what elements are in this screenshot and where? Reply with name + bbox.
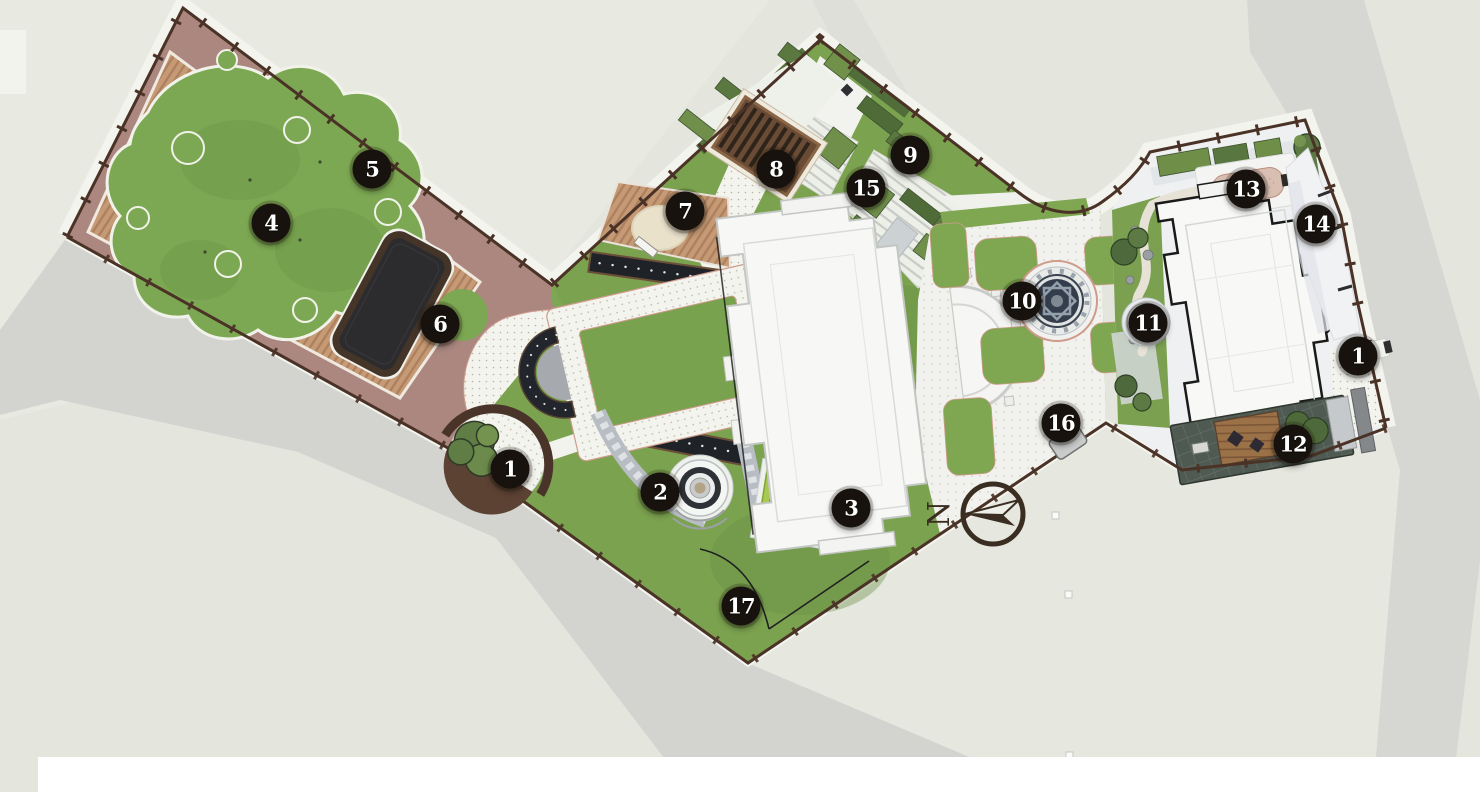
- site-plan-page: N 45612317789151011161314112: [0, 0, 1480, 792]
- dome-pavilion: [1122, 298, 1170, 346]
- bench: [1192, 441, 1209, 454]
- site-plan: N: [0, 0, 1480, 792]
- lawn-patch: [436, 289, 488, 341]
- north-label: N: [922, 501, 957, 527]
- tree-highlight: [1294, 135, 1306, 147]
- bottom-margin: [38, 757, 1480, 792]
- star-fountain: [1017, 261, 1097, 341]
